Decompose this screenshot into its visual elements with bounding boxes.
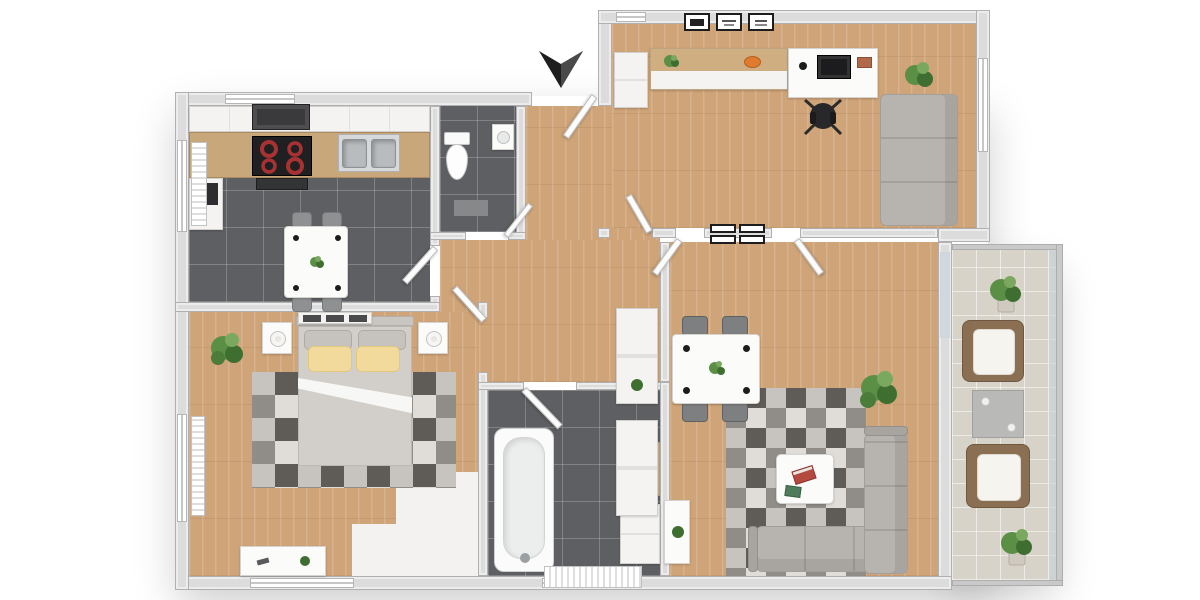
office-chair-icon [800,92,846,140]
wall-step-right [938,228,990,242]
table-dot [683,345,690,352]
toilet-bowl [446,144,468,180]
window-bedroom-bottom [250,578,354,588]
frame-art [722,20,736,22]
wall-bathroom-top-a [478,382,524,390]
microwave-hood-icon [252,104,310,130]
desk-plant-icon [299,555,311,567]
floor-plan [0,0,1200,600]
book-green [784,485,801,498]
frame-art [724,24,734,26]
lamp-icon [426,331,442,347]
chest-drawer [349,315,367,322]
tub-faucet [520,553,530,563]
mug-icon [799,62,807,70]
table-dot [335,235,341,241]
desk-red-item [857,57,872,68]
armchair-cushion [973,329,1015,375]
table-plant-icon [308,254,326,272]
office-sofa [880,94,958,226]
balcony-side-table [972,390,1024,438]
living-chair-1 [682,316,708,336]
table-knob [1007,423,1016,432]
wall-frame-2 [716,13,742,31]
living-wall-plaque-3 [710,235,736,244]
tub-basin [503,437,545,559]
chest-drawer [303,315,321,322]
wall-mid-s2 [652,228,676,238]
office-plant-icon [900,58,938,96]
wall-frame-1 [684,13,710,31]
wall-office-left [598,10,612,106]
armchair-cushion [977,454,1021,501]
frame-art [690,19,704,26]
bedroom-drawer-chest [298,312,372,324]
frame-art [755,20,767,22]
living-chair-3 [682,402,708,422]
window-kitchen-top [225,94,295,104]
wall-mid-s1 [598,228,610,238]
living-dining-table [672,334,760,404]
balcony-plant-top-icon [984,274,1028,318]
nightstand-left [262,322,292,354]
window-bedroom-left [177,414,187,522]
window-office-top [616,12,646,22]
living-chair-2 [722,316,748,336]
balcony-railing-bottom [952,580,1063,586]
wall-bedroom-right-b [478,372,488,576]
balcony-plant-bottom-icon [994,526,1040,570]
radiator-kitchen [191,142,207,226]
radiator-bedroom [191,416,205,516]
sink-basin-left [342,139,367,168]
sofa-right-section [864,434,908,574]
book-red [791,465,816,485]
wall-mid-s4 [800,228,938,238]
sideboard-plant-icon [662,52,682,72]
living-chair-4 [722,402,748,422]
office-desk [788,48,878,98]
living-wall-plaque-4 [739,235,765,244]
orange-bowl [744,56,761,68]
desk-item [257,558,270,566]
sofa-armrest-top [864,426,908,436]
table-dot [293,285,299,291]
entrance-arrow-icon [538,50,584,90]
table-plant-icon [707,359,727,379]
table-dot [743,387,750,394]
chest-drawer [326,315,344,322]
wall-office-top [598,10,990,24]
sofa-armrest [748,526,758,572]
bathtub [494,428,554,572]
balcony-armchair-1 [962,320,1024,382]
balcony-railing-right [1056,244,1063,586]
bedroom-plant-icon [206,328,248,374]
sink-unit [338,134,400,172]
kitchen-dining-table [284,226,348,298]
lamp-icon [270,331,286,347]
toilet-icon [444,132,470,182]
wall-kitchen-right-a [430,106,440,246]
table-dot [293,235,299,241]
radiator-bathroom [544,566,642,588]
office-wardrobe [614,52,648,108]
table-dot [683,387,690,394]
pillow-yellow-left [308,346,352,372]
bedroom-desk [240,546,326,576]
table-dot [743,345,750,352]
window-kitchen-left [177,140,187,232]
stove-icon [252,136,312,176]
hall-cabinet-plant-icon [630,378,644,392]
monitor-icon [817,55,851,79]
balcony-armchair-2 [966,444,1030,508]
balcony-railing-top [952,244,1062,250]
wall-wc-bottom-a [430,232,466,240]
kitchen-chair-3 [292,296,312,312]
pillow-yellow-right [356,346,400,372]
hall-console [664,500,690,564]
table-dot [335,285,341,291]
double-bed [296,316,414,466]
window-office-right [978,58,988,152]
hall-cabinet-lower [616,420,658,516]
living-plant-icon [854,366,904,416]
kitchen-chair-4 [322,296,342,312]
bedroom-wardrobe-nook-step [352,524,398,576]
living-wall-plaque-2 [739,224,765,233]
table-knob [981,397,990,406]
nightstand-right [418,322,448,354]
balcony-sliding-door [940,252,950,338]
frame-art [755,24,767,26]
wc-corner-sink [492,124,514,150]
console-plant-icon [671,525,685,539]
oven-front [256,178,308,190]
wc-basin [497,131,510,144]
living-wall-plaque-1 [710,224,736,233]
sink-basin-right [371,139,396,168]
coffee-table [776,454,834,504]
wall-frame-3 [748,13,774,31]
wc-mat [454,200,488,216]
